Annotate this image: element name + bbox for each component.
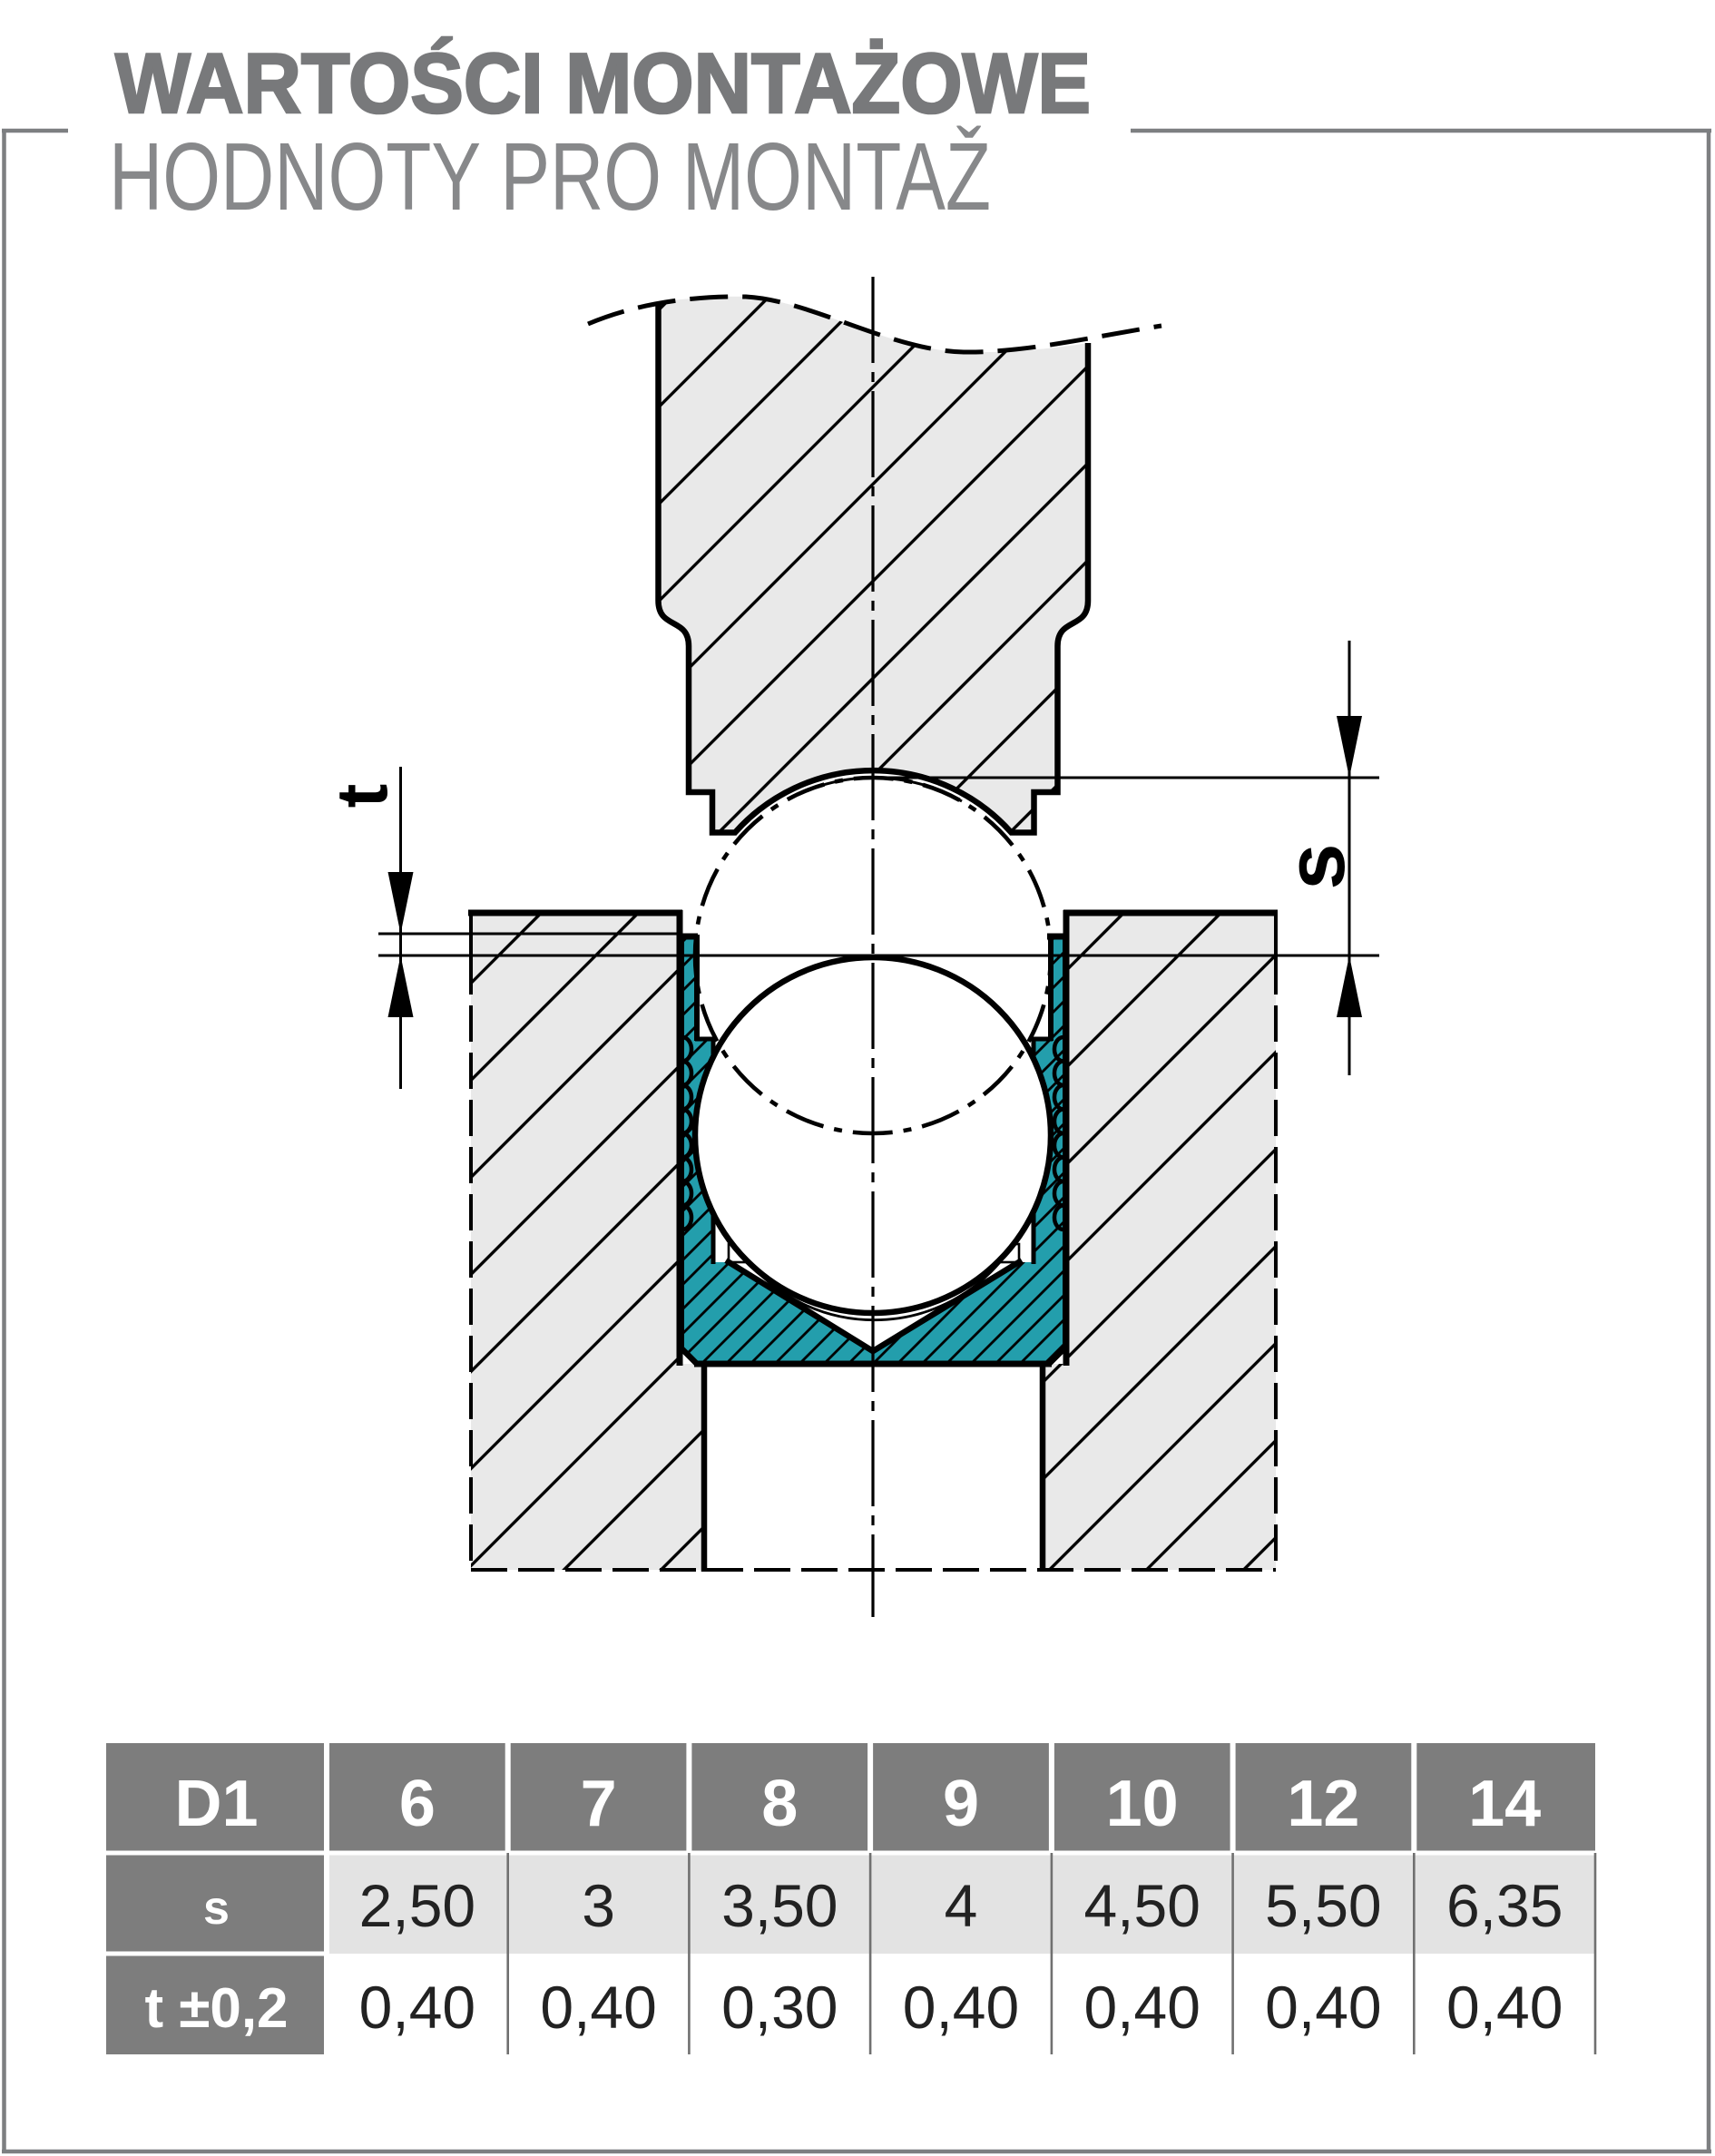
svg-text:12: 12 [1287,1768,1359,1840]
svg-text:14: 14 [1468,1768,1541,1840]
svg-text:0,30: 0,30 [721,1974,838,2041]
svg-text:10: 10 [1106,1768,1179,1840]
svg-text:HODNOTY PRO MONTAŽ: HODNOTY PRO MONTAŽ [109,123,991,230]
svg-text:5,50: 5,50 [1265,1872,1381,1939]
svg-text:4,50: 4,50 [1083,1872,1200,1939]
svg-text:0,40: 0,40 [1265,1974,1381,2041]
svg-text:D1: D1 [174,1768,258,1840]
svg-text:WARTOŚCI MONTAŻOWE: WARTOŚCI MONTAŻOWE [115,35,1091,131]
svg-text:7: 7 [581,1768,617,1840]
svg-text:0,40: 0,40 [1083,1974,1200,2041]
svg-text:3,50: 3,50 [721,1872,838,1939]
svg-text:t ±0,2: t ±0,2 [144,1977,288,2040]
svg-text:9: 9 [943,1768,979,1840]
svg-text:0,40: 0,40 [359,1974,475,2041]
svg-text:4: 4 [945,1872,978,1939]
svg-text:2,50: 2,50 [359,1872,475,1939]
svg-text:0,40: 0,40 [1446,1974,1563,2041]
svg-text:6: 6 [399,1768,436,1840]
svg-text:8: 8 [761,1768,798,1840]
svg-text:0,40: 0,40 [903,1974,1019,2041]
svg-text:3: 3 [582,1872,615,1939]
svg-text:6,35: 6,35 [1446,1872,1563,1939]
svg-text:t: t [322,784,403,808]
svg-text:s: s [1269,843,1362,889]
svg-text:s: s [203,1882,230,1935]
svg-text:0,40: 0,40 [540,1974,656,2041]
